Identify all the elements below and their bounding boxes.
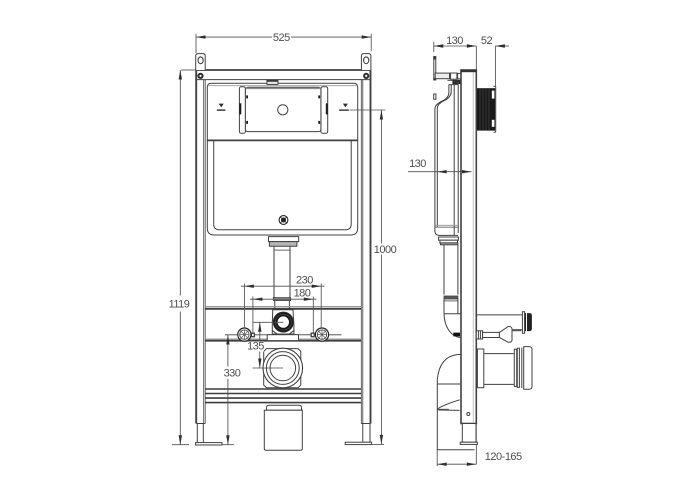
svg-text:135: 135 xyxy=(247,341,264,353)
svg-text:525: 525 xyxy=(273,32,290,44)
svg-text:130: 130 xyxy=(409,158,426,170)
svg-text:130: 130 xyxy=(446,35,463,47)
svg-text:1119: 1119 xyxy=(169,299,190,311)
svg-text:330: 330 xyxy=(224,367,241,379)
svg-text:52: 52 xyxy=(481,35,493,47)
svg-text:120-165: 120-165 xyxy=(485,451,522,463)
svg-text:1000: 1000 xyxy=(374,244,397,256)
svg-text:230: 230 xyxy=(296,274,313,286)
svg-text:180: 180 xyxy=(294,287,311,299)
